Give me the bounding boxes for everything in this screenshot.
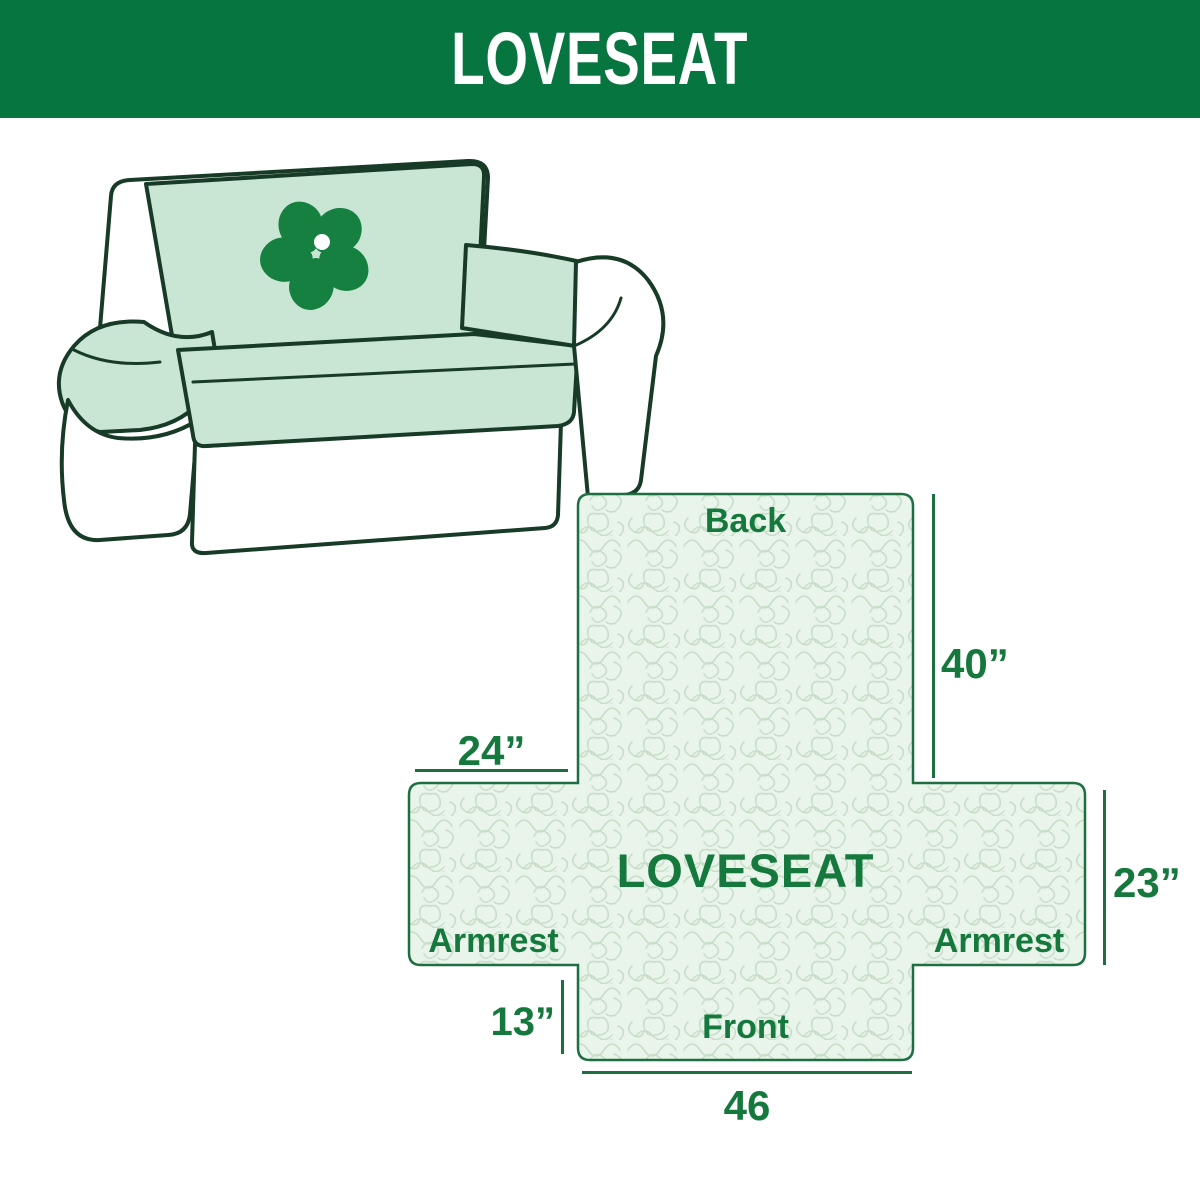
armrest-left-label: Armrest (409, 923, 578, 960)
front-width-dimension: 46 (582, 1083, 912, 1129)
back-section-label: Back (578, 503, 913, 540)
measure-line-back-height (932, 494, 935, 778)
measure-line-front-height (561, 980, 564, 1054)
front-height-dimension: 13” (463, 1000, 555, 1044)
diagram-center-title: LOVESEAT (578, 845, 913, 897)
header-banner: LOVESEAT (0, 0, 1200, 118)
armrest-width-dimension: 24” (415, 728, 568, 774)
armrest-height-dimension: 23” (1113, 860, 1181, 906)
page-title: LOVESEAT (452, 22, 749, 96)
front-section-label: Front (578, 1009, 913, 1046)
product-dimension-infographic: LOVESEAT (0, 0, 1200, 1200)
measure-line-armrest-height (1103, 790, 1106, 965)
back-height-dimension: 40” (941, 641, 1009, 687)
armrest-right-label: Armrest (913, 923, 1085, 960)
cover-cross-shape (409, 494, 1085, 1060)
measure-line-front-width (582, 1071, 912, 1074)
